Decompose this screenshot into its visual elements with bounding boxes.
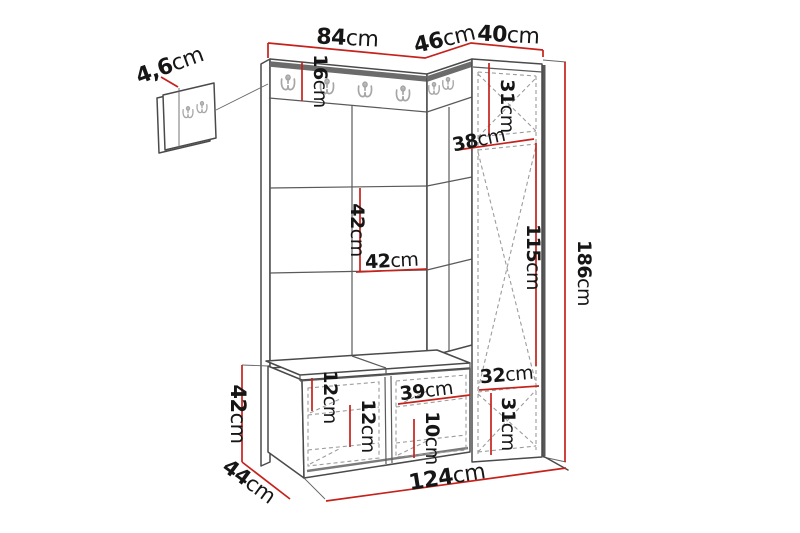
bench-left-side-face (268, 366, 304, 478)
dim-label-panel-column-width: 42cm (364, 249, 419, 274)
dim-label-total-width: 124cm (407, 459, 487, 496)
diagram-canvas: 4,6cm 84cm 46cm 40cm 16cm 31cm 38cm 42cm… (0, 0, 800, 533)
wall-panel-corner-section (427, 59, 472, 357)
dim-label-rail-height: 16cm (309, 54, 331, 107)
dim-label-cabinet-door-height: 115cm (522, 224, 544, 290)
detail-callout-line (216, 84, 268, 110)
dim-label-bench-depth: 44cm (218, 454, 280, 508)
total-height-extensions (543, 60, 566, 462)
dim-label-cabinet-bottom-section: 31cm (497, 397, 519, 450)
dim-label-side-top-depth: 46cm (411, 20, 477, 58)
dim-label-panel-row-height: 42cm (346, 203, 368, 256)
dim-label-bench-inner-height: 10cm (421, 411, 443, 464)
dim-label-bench-height: 42cm (226, 384, 250, 443)
small-hook-panel (157, 83, 268, 153)
total-width-extension (304, 478, 325, 499)
furniture-dimension-drawing: 4,6cm 84cm 46cm 40cm 16cm 31cm 38cm 42cm… (0, 0, 800, 533)
dim-label-bench-shelf-bottom: 12cm (357, 399, 379, 452)
dim-label-total-height: 186cm (573, 240, 595, 306)
small-panel-front-face (163, 83, 216, 150)
dim-label-cabinet-inner-width: 32cm (479, 362, 534, 389)
dim-label-front-width: 84cm (316, 24, 379, 52)
dim-label-bench-shelf-top: 12cm (319, 370, 341, 423)
dim-label-cabinet-width: 40cm (477, 21, 540, 49)
